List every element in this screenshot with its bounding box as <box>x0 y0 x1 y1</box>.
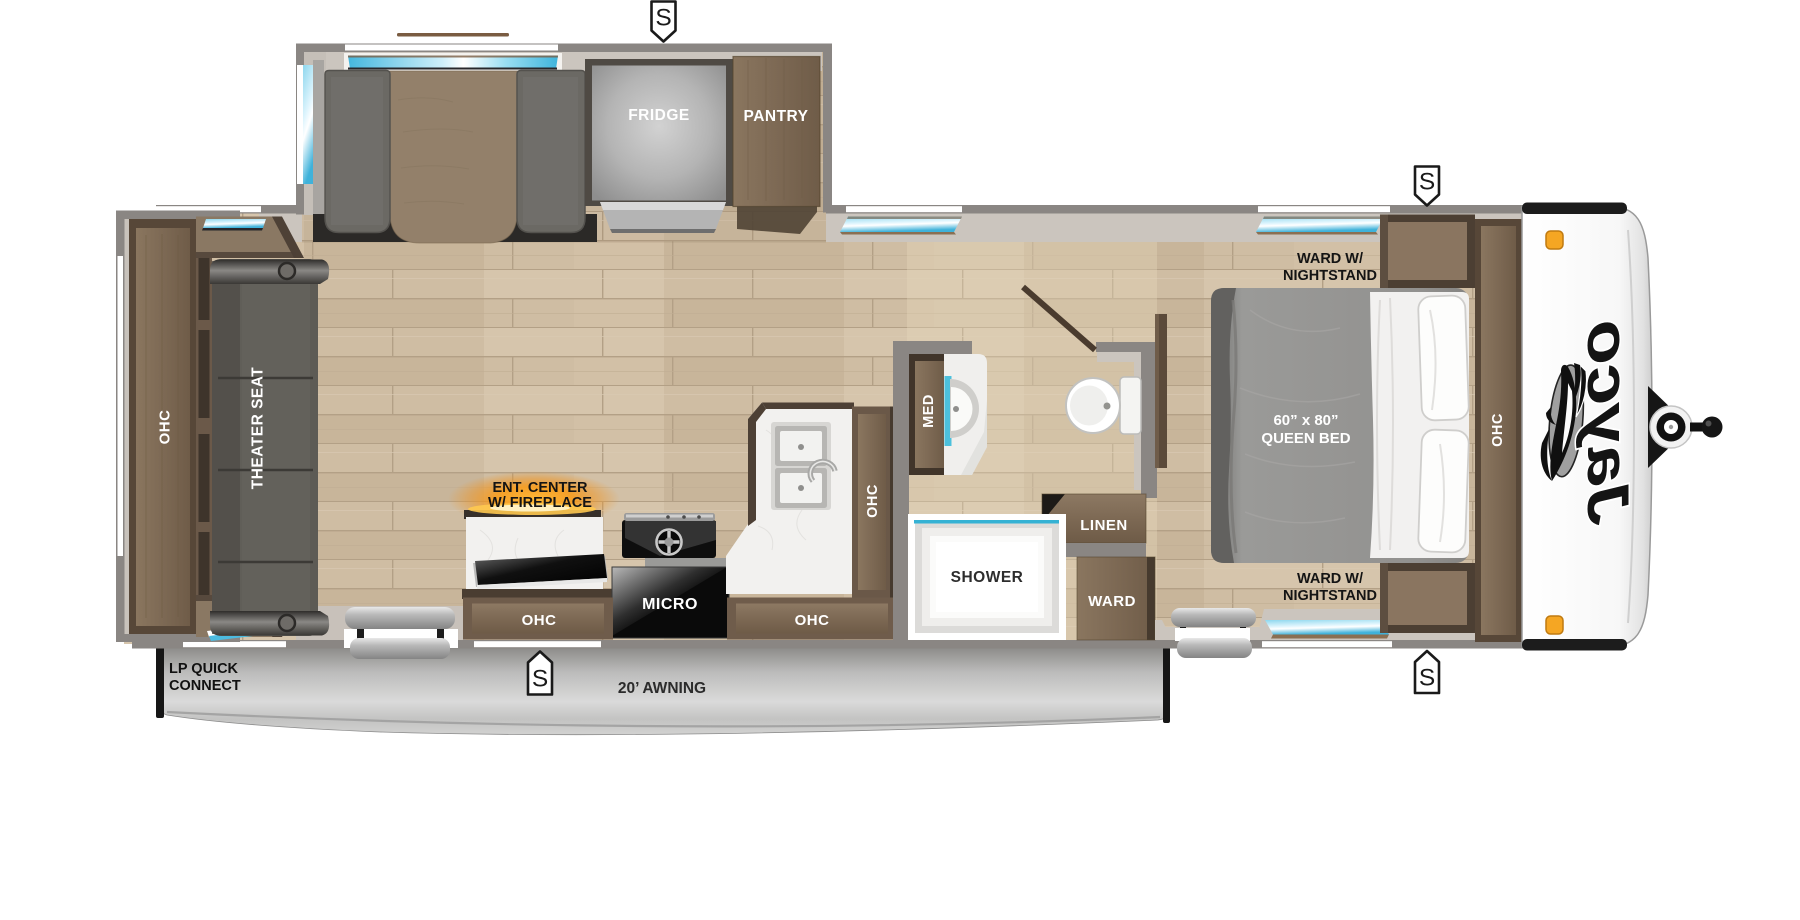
svg-text:NIGHTSTAND: NIGHTSTAND <box>1283 588 1377 604</box>
svg-text:PANTRY: PANTRY <box>744 108 809 125</box>
svg-text:OHC: OHC <box>865 484 881 518</box>
svg-text:LINEN: LINEN <box>1080 517 1128 534</box>
svg-text:MED: MED <box>921 394 937 428</box>
svg-text:WARD W/: WARD W/ <box>1297 571 1363 587</box>
svg-text:20’ AWNING: 20’ AWNING <box>618 680 706 697</box>
svg-text:MICRO: MICRO <box>642 596 698 613</box>
svg-text:LP QUICK: LP QUICK <box>169 661 239 677</box>
svg-text:S: S <box>1419 665 1435 692</box>
svg-text:SHOWER: SHOWER <box>951 569 1024 586</box>
svg-text:W/ FIREPLACE: W/ FIREPLACE <box>488 495 592 511</box>
svg-text:OHC: OHC <box>795 612 830 629</box>
svg-text:Jayco: Jayco <box>1575 320 1640 526</box>
svg-text:NIGHTSTAND: NIGHTSTAND <box>1283 268 1377 284</box>
svg-text:OHC: OHC <box>522 612 557 629</box>
svg-text:OHC: OHC <box>157 410 174 445</box>
svg-text:WARD: WARD <box>1088 593 1136 610</box>
svg-text:60” x 80”: 60” x 80” <box>1273 412 1338 429</box>
svg-text:ENT. CENTER: ENT. CENTER <box>492 480 588 496</box>
svg-text:S: S <box>532 666 548 693</box>
svg-text:S: S <box>1419 169 1435 196</box>
svg-text:OHC: OHC <box>1490 413 1506 447</box>
svg-text:S: S <box>655 5 671 32</box>
svg-text:CONNECT: CONNECT <box>169 678 241 694</box>
svg-text:THEATER SEAT: THEATER SEAT <box>250 367 267 490</box>
svg-text:FRIDGE: FRIDGE <box>628 107 690 124</box>
svg-text:QUEEN BED: QUEEN BED <box>1261 430 1350 447</box>
svg-text:WARD W/: WARD W/ <box>1297 251 1363 267</box>
